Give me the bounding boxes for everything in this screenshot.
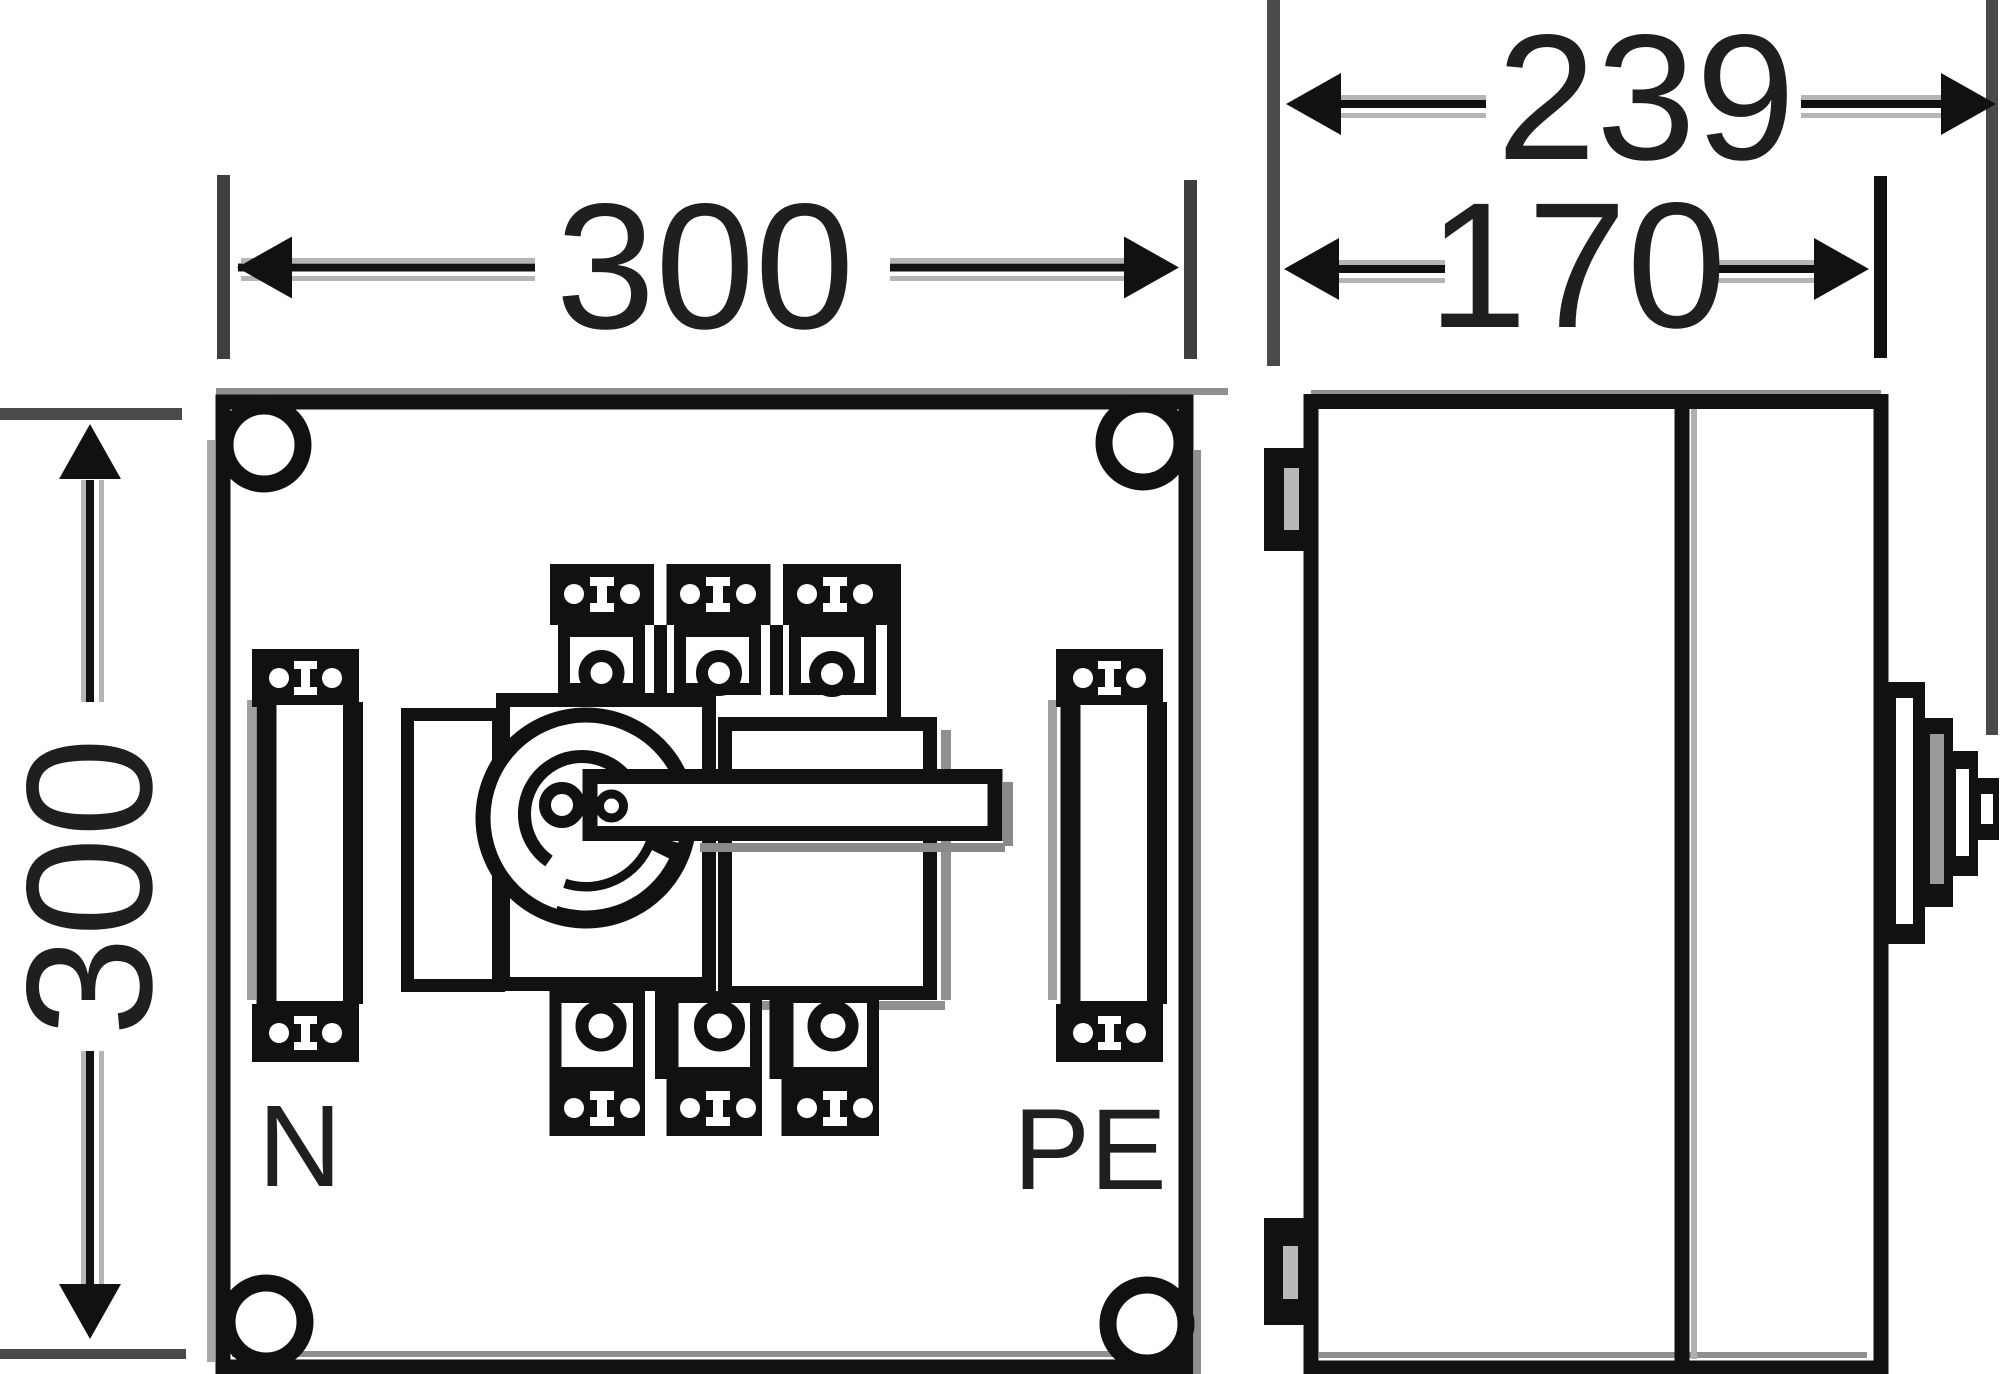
svg-text:300: 300 [0,738,189,1037]
svg-text:170: 170 [1428,165,1727,365]
svg-text:N: N [258,1081,342,1211]
svg-text:PE: PE [1013,1086,1166,1214]
svg-text:300: 300 [556,166,855,366]
